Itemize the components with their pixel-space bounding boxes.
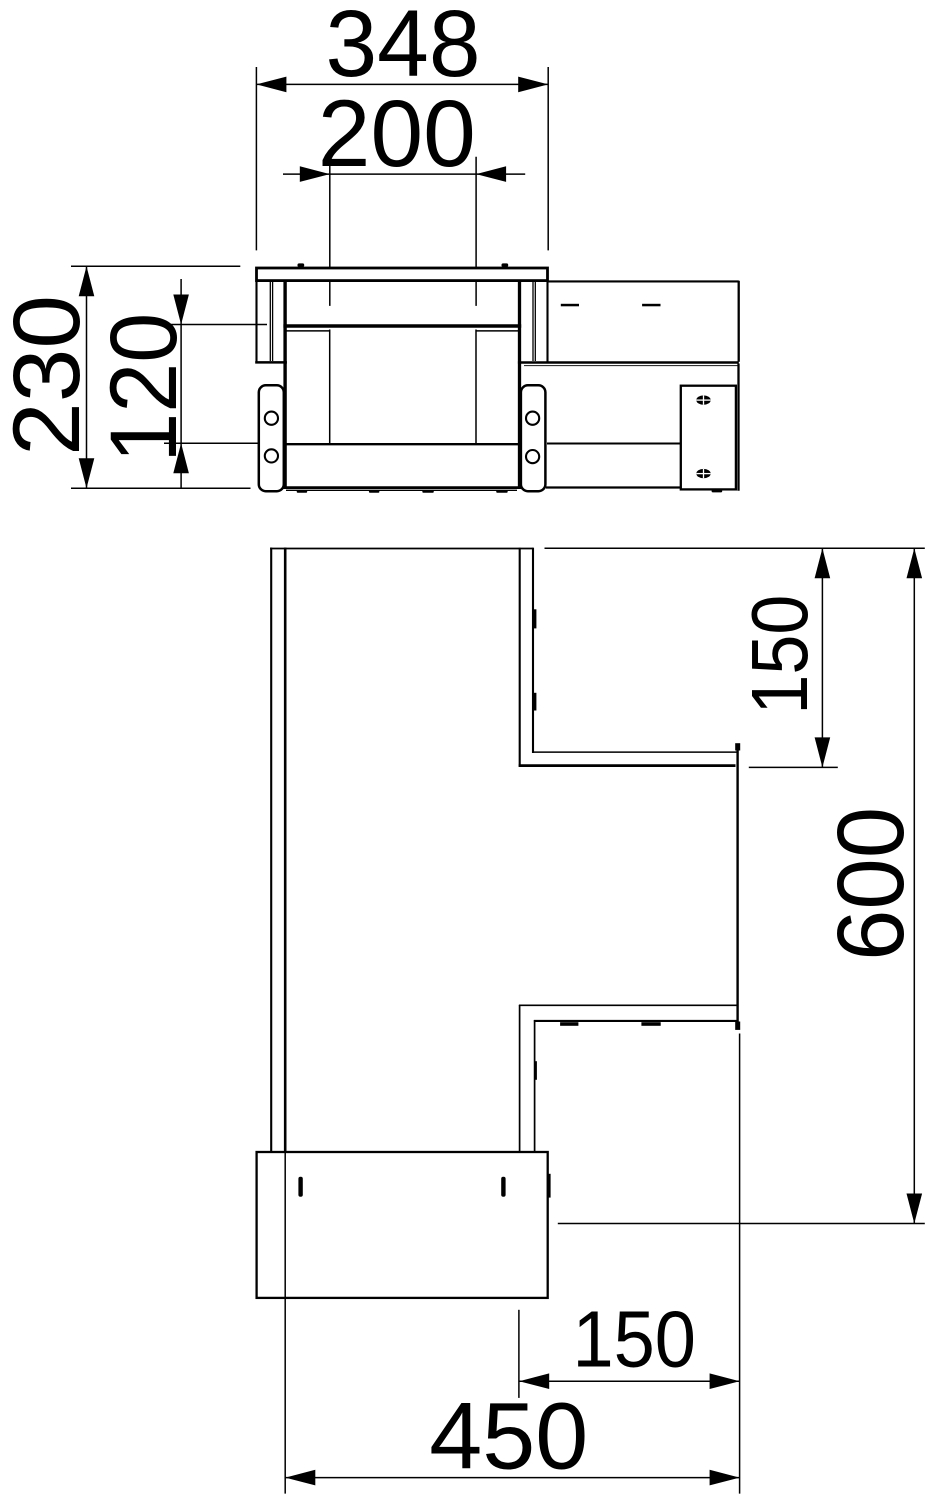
svg-text:150: 150 xyxy=(572,1295,696,1384)
svg-text:200: 200 xyxy=(318,81,476,187)
svg-text:150: 150 xyxy=(735,595,824,715)
svg-text:600: 600 xyxy=(818,807,924,961)
svg-text:450: 450 xyxy=(429,1383,588,1489)
svg-text:230: 230 xyxy=(0,295,100,456)
